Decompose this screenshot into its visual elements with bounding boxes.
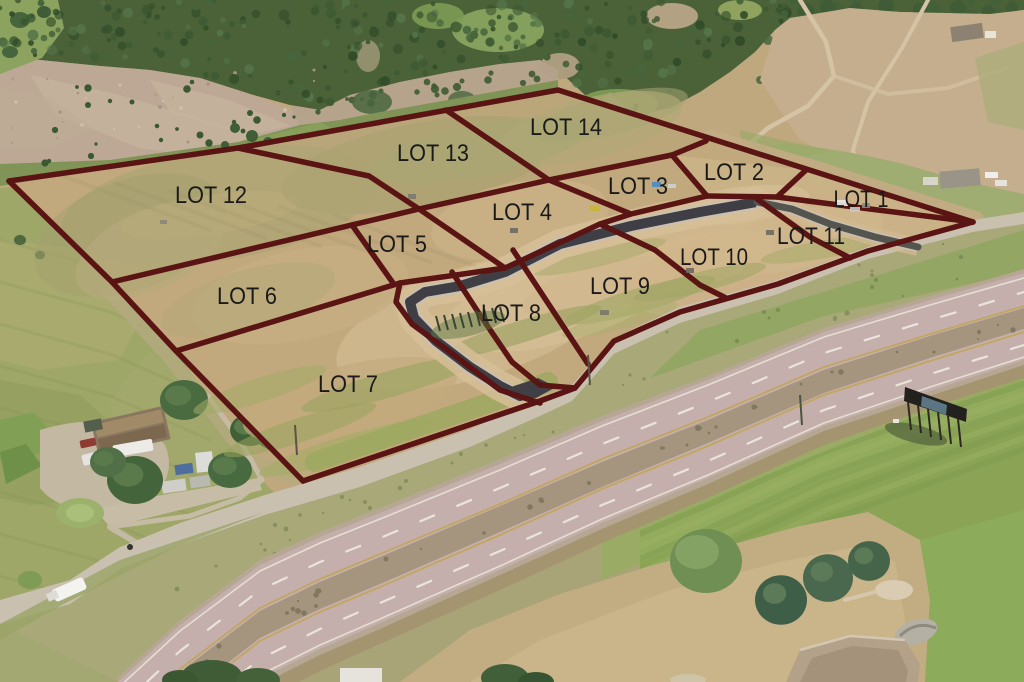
svg-text:LOT 14: LOT 14 bbox=[530, 114, 602, 141]
svg-text:LOT 2: LOT 2 bbox=[704, 159, 764, 186]
svg-text:LOT 4: LOT 4 bbox=[492, 199, 552, 226]
svg-text:LOT 12: LOT 12 bbox=[175, 182, 247, 209]
svg-text:LOT 13: LOT 13 bbox=[397, 140, 469, 167]
svg-text:LOT 8: LOT 8 bbox=[481, 300, 541, 327]
svg-text:LOT 5: LOT 5 bbox=[367, 231, 427, 258]
svg-text:LOT 1: LOT 1 bbox=[834, 186, 889, 213]
svg-text:LOT 11: LOT 11 bbox=[777, 223, 845, 250]
svg-text:LOT 7: LOT 7 bbox=[318, 371, 378, 398]
svg-text:LOT 9: LOT 9 bbox=[590, 273, 650, 300]
svg-text:LOT 10: LOT 10 bbox=[680, 244, 748, 271]
svg-text:LOT 6: LOT 6 bbox=[217, 283, 277, 310]
svg-text:LOT 3: LOT 3 bbox=[608, 173, 668, 200]
